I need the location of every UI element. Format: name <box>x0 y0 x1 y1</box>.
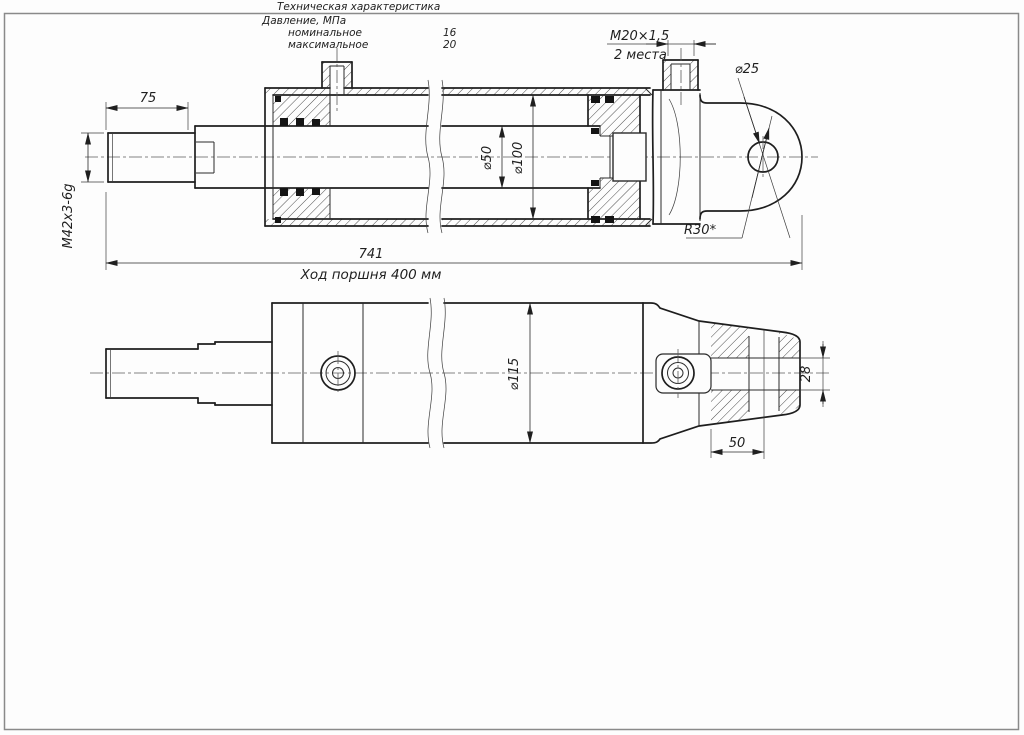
dim-50-label: 50 <box>729 436 746 451</box>
dim-rod-thread-length: 75 <box>106 91 188 130</box>
hydraulic-port-rear <box>663 48 698 105</box>
dim-slot-width: 28 <box>799 341 830 407</box>
dim-741-label: 741 <box>359 247 384 262</box>
dim-d115-label: ⌀115 <box>507 358 522 391</box>
rod-seal <box>280 118 288 126</box>
spec-title: Техническая характеристика <box>277 1 440 13</box>
dim-eye-offset: 50 <box>711 429 764 458</box>
port-face-rear <box>656 349 711 398</box>
piston-assembly <box>588 95 646 223</box>
spec-group-label: Давление, МПа <box>261 15 346 27</box>
spec-row-value: 20 <box>443 39 457 51</box>
stroke-note-label: Ход поршня 400 мм <box>300 267 442 283</box>
rod-gland <box>273 95 330 223</box>
drawing-sheet: Техническая характеристика Давление, МПа… <box>0 0 1024 735</box>
clevis-eye <box>686 78 802 238</box>
dim-rod-thread: М42х3-6g <box>61 133 104 248</box>
spec-row-label: номинальное <box>288 27 362 39</box>
rod-outside <box>106 342 272 405</box>
dim-m20-label: М20×1,5 <box>610 29 669 44</box>
outside-view: ⌀115 28 50 <box>90 298 832 459</box>
dim-d50-label: ⌀50 <box>480 146 495 170</box>
dim-nose-radius-label: R30* <box>684 223 717 238</box>
dim-75-label: 75 <box>140 91 157 106</box>
spec-row-label: максимальное <box>288 39 368 51</box>
technical-drawing: Техническая характеристика Давление, МПа… <box>0 0 1024 735</box>
break-lines-section <box>426 80 444 233</box>
dim-m42-label: М42х3-6g <box>61 184 76 249</box>
dim-d100-label: ⌀100 <box>511 142 526 175</box>
dim-28-label: 28 <box>799 366 814 383</box>
port-face-front <box>321 351 355 395</box>
spec-row-value: 16 <box>443 27 457 39</box>
piston-seal <box>591 96 600 103</box>
clevis-fork-outside <box>643 303 800 459</box>
dim-port-thread: М20×1,5 2 места <box>607 29 716 63</box>
tech-spec-table: Техническая характеристика Давление, МПа… <box>261 1 457 51</box>
section-view: 75 М42х3-6g М20×1,5 2 места ⌀25 R30* ⌀50… <box>61 29 818 283</box>
piston-nut <box>613 133 646 181</box>
dim-m20-note: 2 места <box>614 48 667 63</box>
dim-eye-dia-label: ⌀25 <box>735 62 759 77</box>
